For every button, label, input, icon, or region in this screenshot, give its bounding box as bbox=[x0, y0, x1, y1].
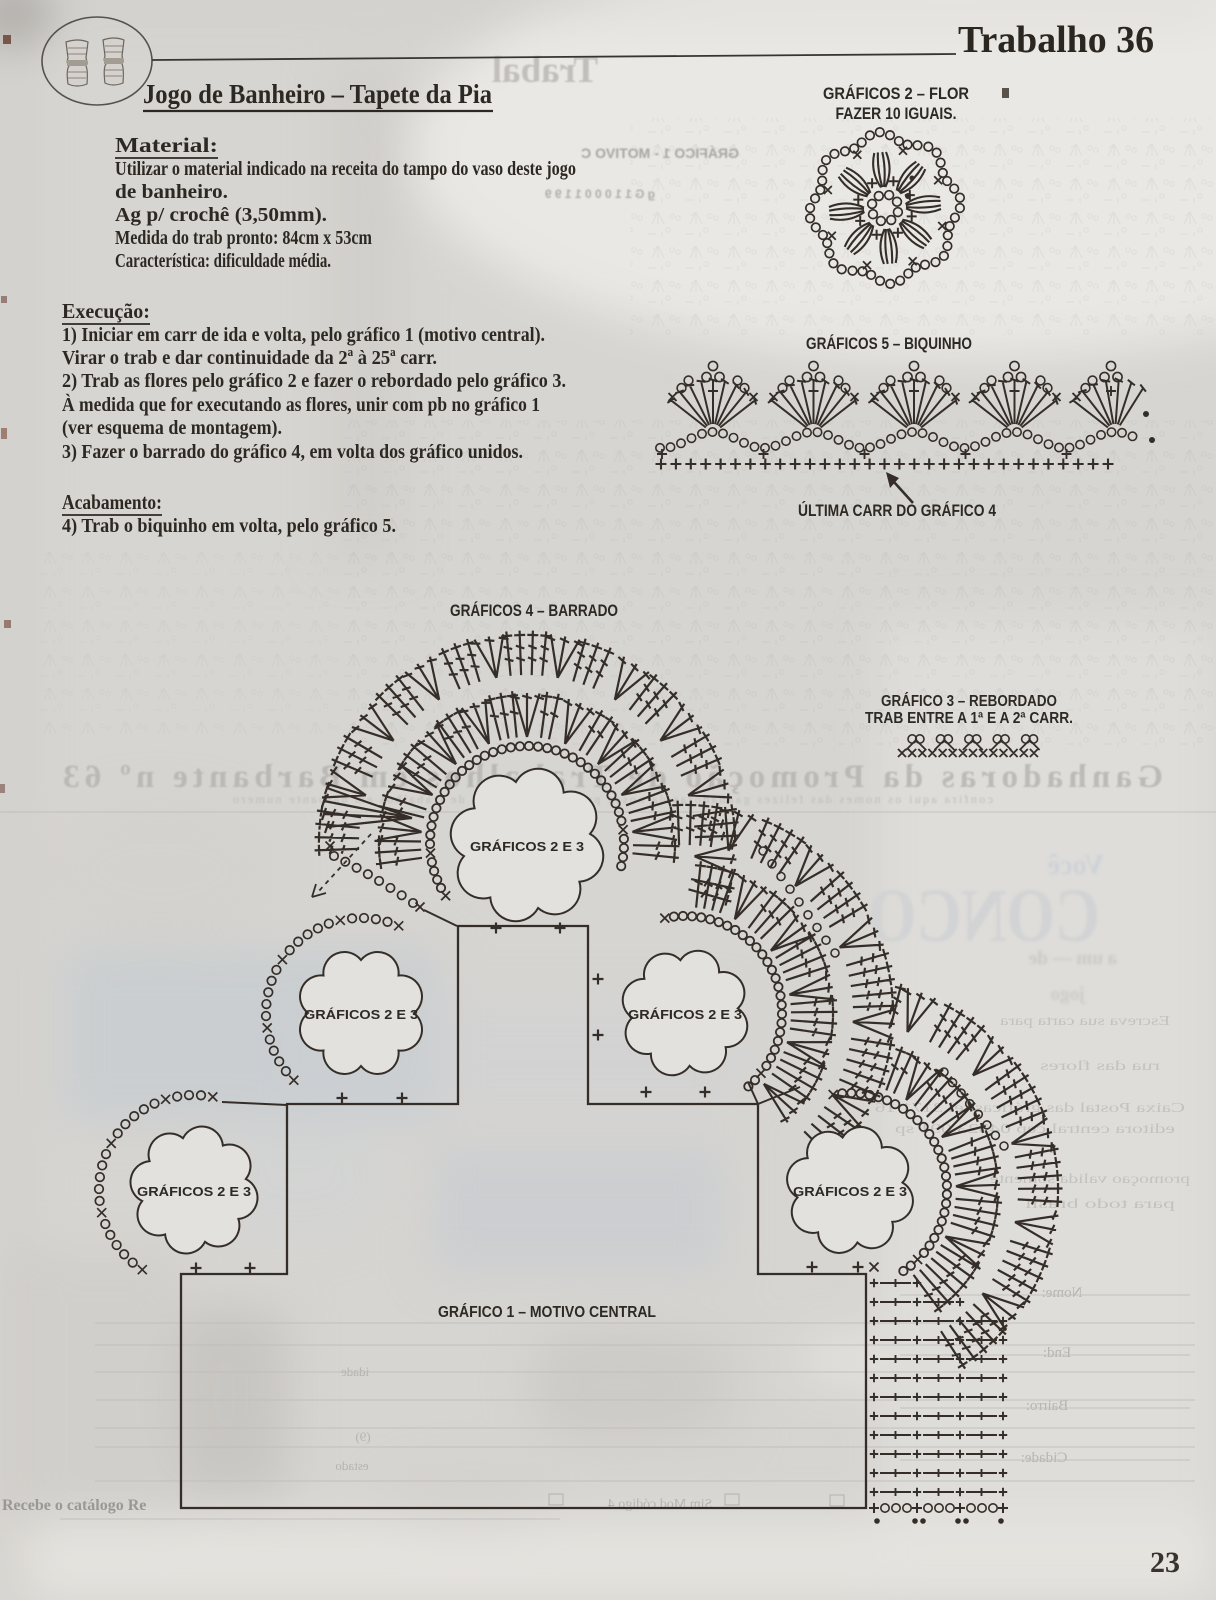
svg-text:Utilizar o material indicado n: Utilizar o material indicado na receita … bbox=[115, 158, 576, 180]
svg-text:g G 1 1 0 0 0 1 1 9 9: g G 1 1 0 0 0 1 1 9 9 bbox=[545, 187, 655, 201]
svg-text:GRÁFICOS 2 – FLOR: GRÁFICOS 2 – FLOR bbox=[823, 84, 969, 103]
svg-text:1) Iniciar em carr de ida e vo: 1) Iniciar em carr de ida e volta, pelo … bbox=[62, 324, 545, 346]
svg-text:Virar o trab e dar continuidad: Virar o trab e dar continuidade da 2ª à … bbox=[62, 347, 437, 369]
svg-text:Execução:: Execução: bbox=[62, 299, 150, 323]
svg-text:Trabalho 36: Trabalho 36 bbox=[958, 19, 1154, 61]
svg-text:À medida que for executando as: À medida que for executando as flores, u… bbox=[62, 393, 540, 416]
svg-text:GRÁFICOS 4 – BARRADO: GRÁFICOS 4 – BARRADO bbox=[450, 601, 618, 620]
svg-text:jogo: jogo bbox=[1051, 984, 1087, 1005]
svg-text:GRÁFICOS 2 E 3: GRÁFICOS 2 E 3 bbox=[793, 1184, 907, 1199]
svg-text:FAZER 10 IGUAIS.: FAZER 10 IGUAIS. bbox=[836, 105, 957, 123]
svg-text:4) Trab o biquinho em volta, p: 4) Trab o biquinho em volta, pelo gráfic… bbox=[62, 515, 396, 537]
svg-text:End:: End: bbox=[1043, 1345, 1071, 1361]
svg-text:GRÁFICOS 5 – BIQUINHO: GRÁFICOS 5 – BIQUINHO bbox=[806, 334, 972, 353]
svg-text:TRAB ENTRE A 1ª E A 2ª CARR.: TRAB ENTRE A 1ª E A 2ª CARR. bbox=[865, 710, 1073, 727]
svg-text:estado: estado bbox=[335, 1458, 368, 1473]
svg-text:de banheiro.: de banheiro. bbox=[115, 181, 228, 203]
svg-text:Acabamento:: Acabamento: bbox=[62, 490, 162, 514]
svg-text:Nome:: Nome: bbox=[1042, 1285, 1083, 1301]
svg-text:GRÁFICOS 2 E 3: GRÁFICOS 2 E 3 bbox=[304, 1007, 418, 1022]
svg-text:GRÁFICOS 2 E 3: GRÁFICOS 2 E 3 bbox=[470, 839, 584, 854]
svg-text:Caixa Postal das gráficas tel: Caixa Postal das gráficas tel 3171 16 bbox=[875, 1100, 1185, 1115]
svg-text:Cidade:: Cidade: bbox=[1021, 1450, 1068, 1466]
svg-text:GRÁFICO 1 – MOTIVO CENTRAL: GRÁFICO 1 – MOTIVO CENTRAL bbox=[438, 1304, 656, 1321]
svg-text:Material:: Material: bbox=[115, 133, 218, 157]
svg-text:Jogo de Banheiro – Tapete da P: Jogo de Banheiro – Tapete da Pia bbox=[143, 79, 492, 109]
svg-text:Escreva sua carta para: Escreva sua carta para bbox=[1000, 1013, 1170, 1028]
svg-text:rua das flores: rua das flores bbox=[1040, 1058, 1160, 1073]
svg-text:ÚLTIMA CARR DO GRÁFICO 4: ÚLTIMA CARR DO GRÁFICO 4 bbox=[798, 501, 996, 520]
svg-text:CONCO: CONCO bbox=[868, 874, 1100, 958]
svg-text:a um — de: a um — de bbox=[1029, 948, 1117, 969]
svg-text:Sim Mod código 4: Sim Mod código 4 bbox=[608, 1497, 713, 1512]
svg-text:GRÁFICO 3 – REBORDADO: GRÁFICO 3 – REBORDADO bbox=[881, 693, 1057, 710]
svg-text:(ver esquema de montagem).: (ver esquema de montagem). bbox=[62, 417, 282, 439]
svg-text:(9): (9) bbox=[355, 1429, 370, 1444]
svg-text:Característica: dificuldade mé: Característica: dificuldade média. bbox=[115, 250, 331, 272]
svg-text:GRÁFICOS 2 E 3: GRÁFICOS 2 E 3 bbox=[137, 1184, 251, 1199]
svg-text:GRÁFICO 1 - MOTIVO C: GRÁFICO 1 - MOTIVO C bbox=[581, 145, 739, 161]
svg-text:3) Fazer o barrado do gráfico: 3) Fazer o barrado do gráfico 4, em volt… bbox=[62, 441, 523, 463]
svg-text:GRÁFICOS 2 E 3: GRÁFICOS 2 E 3 bbox=[628, 1007, 742, 1022]
svg-text:Recebe o catálogo Re: Recebe o catálogo Re bbox=[2, 1497, 146, 1514]
svg-text:23: 23 bbox=[1150, 1546, 1180, 1579]
svg-text:Medida do trab pronto: 84cm x: Medida do trab pronto: 84cm x 53cm bbox=[115, 227, 372, 249]
svg-text:Ag p/ crochê (3,50mm).: Ag p/ crochê (3,50mm). bbox=[115, 204, 327, 226]
svg-text:2) Trab as flores pelo gráfico: 2) Trab as flores pelo gráfico 2 e fazer… bbox=[62, 370, 566, 392]
